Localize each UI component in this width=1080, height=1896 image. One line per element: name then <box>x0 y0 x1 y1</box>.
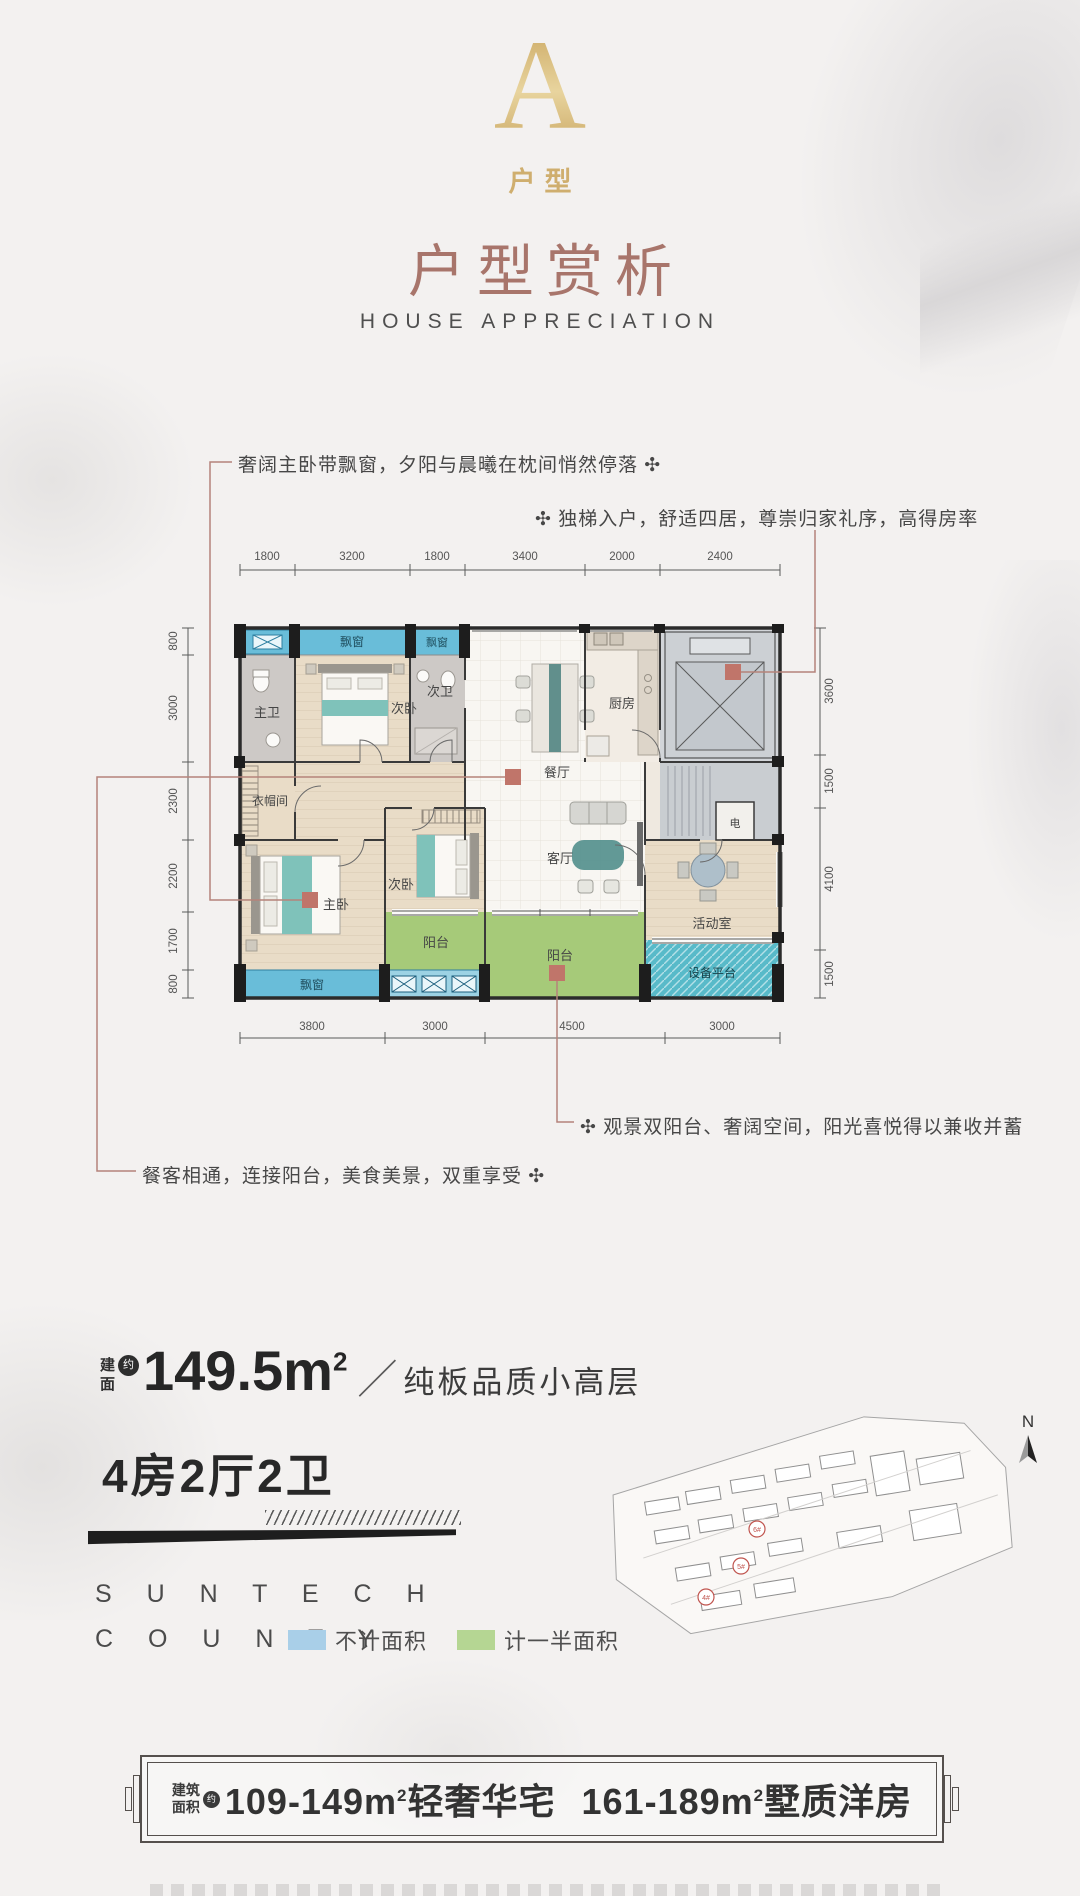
callout-dining-living: 餐客相通，连接阳台，美食美景，双重享受 ✣ <box>142 1161 545 1188</box>
room-label-living: 客厅 <box>547 851 573 866</box>
area-slash: ／ <box>357 1347 397 1405</box>
area-headline: 建 面 约 149.5m2 ／ 纯板品质小高层 <box>100 1343 641 1405</box>
dim-bottom-0: 3800 <box>299 1021 325 1033</box>
room-label-balcony2: 阳台 <box>547 948 573 963</box>
unit-type-letter: A <box>0 18 1080 152</box>
dim-right-2: 4100 <box>824 866 836 892</box>
layout-label: 4房2厅2卫 <box>102 1440 335 1506</box>
dim-right-3: 1500 <box>824 961 836 987</box>
dim-left-3: 2200 <box>168 863 180 889</box>
banner-prefix-line2: 面积 <box>172 1799 200 1816</box>
legend-swatch-green <box>457 1630 495 1650</box>
callout-master-bedroom: 奢阔主卧带飘窗，夕阳与晨曦在枕间悄然停落 ✣ <box>238 450 661 477</box>
siteplan-badge-1: 5# <box>737 1564 745 1571</box>
approx-badge: 约 <box>118 1355 139 1376</box>
banner-desc2: 墅质洋房 <box>764 1781 912 1822</box>
banner-ornament-left <box>133 1775 140 1823</box>
banner-range2: 161-189m <box>582 1781 754 1822</box>
room-label-electric: 电 <box>730 817 741 830</box>
room-label-master-bath: 主卫 <box>254 705 280 720</box>
banner-prefix-line1: 建筑 <box>172 1782 200 1799</box>
floorplan-drawing: 主卫 次卧 次卫 餐厅 厨房 衣帽间 主卧 次卧 客厅 阳台 阳台 活动室 设备… <box>120 540 860 1070</box>
area-descriptor: 纯板品质小高层 <box>403 1357 641 1402</box>
room-label-bath2: 次卫 <box>427 684 453 699</box>
room-label-cloakroom: 衣帽间 <box>252 793 288 808</box>
room-label-bay-window-top1: 飘窗 <box>340 635 364 649</box>
area-prefix: 建 面 <box>100 1357 115 1395</box>
compass-north-icon: N <box>1019 1412 1037 1463</box>
siteplan-badge-2: 4# <box>702 1595 710 1602</box>
dim-bottom-3: 3000 <box>709 1021 735 1033</box>
dim-bottom-2: 4500 <box>559 1021 585 1033</box>
room-label-balcony1: 阳台 <box>423 935 449 950</box>
brand-name-line1: S U N T E C H <box>95 1580 439 1609</box>
room-label-dining: 餐厅 <box>544 765 570 780</box>
area-prefix-line2: 面 <box>100 1376 115 1395</box>
dim-top-5: 2400 <box>707 551 733 563</box>
banner-ornament-left-outer <box>125 1787 132 1811</box>
callout-private-elevator: ✣ 独梯入户，舒适四居，尊崇归家礼序，高得房率 <box>535 504 978 531</box>
siteplan-badge-0: 6# <box>753 1527 761 1534</box>
banner-desc1: 轻奢华宅 <box>407 1781 555 1822</box>
room-label-master-bedroom: 主卧 <box>323 897 349 912</box>
poster-page: A 户型 户型赏析 HOUSE APPRECIATION 奢阔主卧带飘窗，夕阳与… <box>0 0 1080 1896</box>
area-value-sup: 2 <box>333 1346 347 1376</box>
compass-label: N <box>1022 1412 1034 1431</box>
dim-left-4: 1700 <box>168 928 180 954</box>
dim-bottom-1: 3000 <box>422 1021 448 1033</box>
dim-left-2: 2300 <box>168 788 180 814</box>
room-label-bedroom3: 次卧 <box>388 877 414 892</box>
page-subtitle: HOUSE APPRECIATION <box>0 310 1080 334</box>
room-label-equipment: 设备平台 <box>688 965 736 980</box>
banner-text: 109-149m2轻奢华宅161-189m2墅质洋房 <box>225 1773 912 1825</box>
banner-ornament-right <box>944 1775 951 1823</box>
banner-range2-sup: 2 <box>754 1786 764 1805</box>
dim-top-0: 1800 <box>254 551 280 563</box>
banner-content: 建筑 面积 约 109-149m2轻奢华宅161-189m2墅质洋房 <box>147 1762 937 1836</box>
dim-top-3: 3400 <box>512 551 538 563</box>
room-label-bay-window-top2: 飘窗 <box>426 635 448 649</box>
banner-approx-badge: 约 <box>203 1791 220 1808</box>
bedroom3-furniture <box>417 810 480 899</box>
page-title: 户型赏析 <box>0 226 1080 308</box>
callout-double-balcony: ✣ 观景双阳台、奢阔空间，阳光喜悦得以兼收并蓄 <box>580 1112 1023 1139</box>
room-label-kitchen: 厨房 <box>609 696 635 711</box>
banner-prefix: 建筑 面积 <box>172 1782 200 1816</box>
room-label-activity: 活动室 <box>692 916 731 931</box>
dim-top-2: 1800 <box>424 551 450 563</box>
dim-left-1: 3000 <box>168 695 180 721</box>
dim-top-4: 2000 <box>609 551 635 563</box>
dim-left-5: 800 <box>168 974 180 993</box>
dim-right-1: 1500 <box>824 768 836 794</box>
banner-range1-sup: 2 <box>397 1786 407 1805</box>
dim-left-0: 800 <box>168 631 180 650</box>
hatch-decoration <box>265 1510 461 1525</box>
cutoff-address-strip <box>150 1884 940 1896</box>
banner-ornament-right-outer <box>952 1787 959 1811</box>
plan-legend: 不计面积 计一半面积 <box>288 1624 619 1656</box>
area-value: 149.5m2 <box>143 1343 347 1399</box>
area-range-banner: 建筑 面积 约 109-149m2轻奢华宅161-189m2墅质洋房 <box>140 1755 944 1843</box>
room-label-bedroom2: 次卧 <box>391 701 417 716</box>
legend-label-blue: 不计面积 <box>335 1624 427 1656</box>
marble-vein <box>950 560 1080 980</box>
siteplan-map: 6# 5# 4# N <box>580 1405 1060 1640</box>
legend-swatch-blue <box>288 1630 326 1650</box>
legend-item-blue: 不计面积 <box>288 1624 427 1656</box>
banner-range1: 109-149m <box>225 1781 397 1822</box>
unit-type-label: 户型 <box>0 160 1080 199</box>
dim-top-1: 3200 <box>339 551 365 563</box>
room-label-bay-window-bottom: 飘窗 <box>300 978 324 992</box>
wedge-decoration <box>88 1528 456 1545</box>
dim-right-0: 3600 <box>824 678 836 704</box>
area-prefix-line1: 建 <box>100 1357 115 1376</box>
